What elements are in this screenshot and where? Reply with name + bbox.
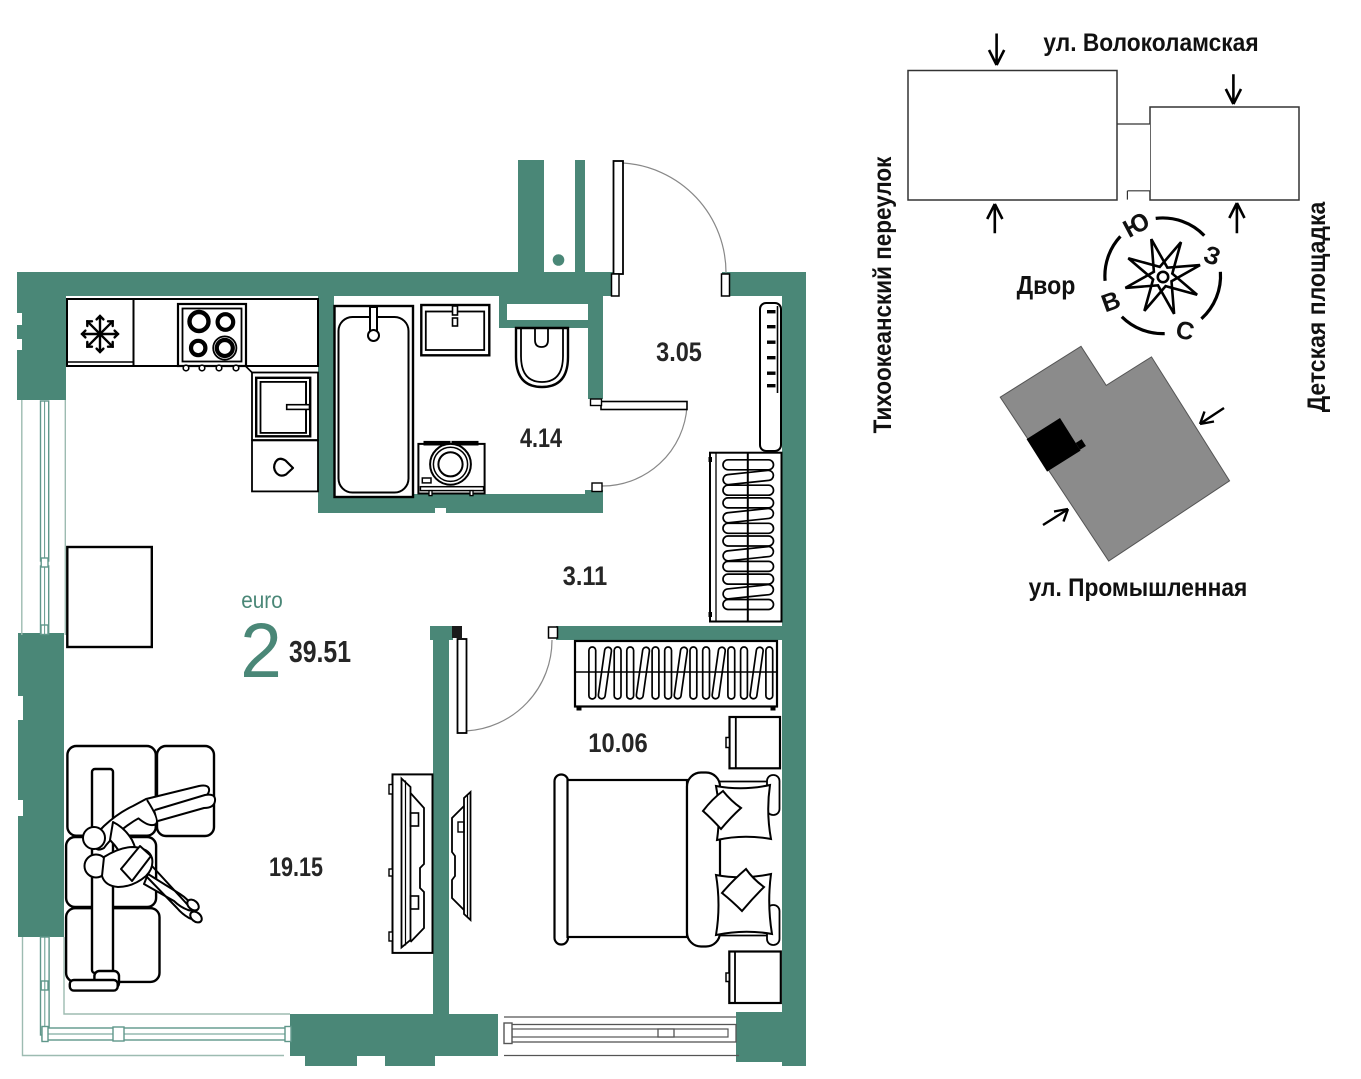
svg-text:10.06: 10.06 [588,729,647,759]
svg-text:3.11: 3.11 [563,562,607,592]
svg-text:Двор: Двор [1017,272,1076,301]
svg-text:3.05: 3.05 [656,338,702,368]
svg-text:39.51: 39.51 [289,634,351,668]
svg-text:ул. Волоколамская: ул. Волоколамская [1043,29,1258,57]
svg-text:Детская площадка: Детская площадка [1303,201,1331,412]
svg-text:З: З [1200,240,1224,272]
svg-text:Ю: Ю [1119,207,1155,244]
svg-text:Тихоокеанский переулок: Тихоокеанский переулок [869,156,897,433]
svg-text:С: С [1173,315,1196,346]
svg-text:2: 2 [240,608,282,694]
svg-text:19.15: 19.15 [269,853,323,883]
svg-text:4.14: 4.14 [520,424,562,454]
svg-text:В: В [1098,286,1125,318]
svg-text:ул. Промышленная: ул. Промышленная [1029,574,1248,602]
